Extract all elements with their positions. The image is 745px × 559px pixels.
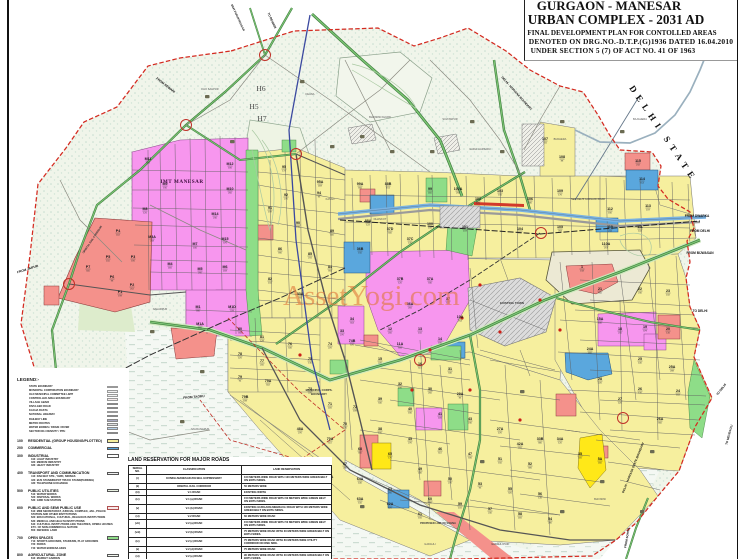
svg-text:104: 104 (517, 227, 523, 231)
svg-text:M7: M7 (193, 242, 198, 246)
svg-text:111: 111 (637, 225, 643, 229)
svg-text:75: 75 (308, 357, 312, 361)
svg-text:32: 32 (398, 382, 402, 386)
svg-text:38: 38 (378, 427, 382, 431)
svg-text:NEW DELHI GURGAON ROAD: NEW DELHI GURGAON ROAD (571, 198, 605, 201)
svg-text:63: 63 (388, 487, 392, 491)
svg-text:103: 103 (497, 189, 503, 193)
svg-text:53: 53 (478, 482, 482, 486)
svg-text:BAJGHERA: BAJGHERA (633, 117, 647, 121)
svg-text:50: 50 (448, 477, 452, 481)
svg-text:84: 84 (328, 265, 332, 269)
svg-text:72: 72 (353, 405, 357, 409)
svg-text:H5: H5 (249, 102, 258, 111)
svg-text:77: 77 (260, 359, 264, 363)
svg-text:58: 58 (518, 512, 522, 516)
svg-text:BUDHERA: BUDHERA (554, 137, 567, 141)
svg-text:P3: P3 (131, 255, 135, 259)
svg-text:BOUNDARY: BOUNDARY (311, 392, 327, 396)
svg-text:99A: 99A (357, 182, 364, 186)
svg-text:78: 78 (238, 352, 242, 356)
svg-text:76: 76 (288, 342, 292, 346)
svg-text:BHONDSI: BHONDSI (594, 497, 606, 501)
svg-text:46: 46 (438, 447, 442, 451)
svg-text:26A: 26A (657, 417, 664, 421)
svg-text:82: 82 (268, 277, 272, 281)
svg-text:16: 16 (418, 362, 422, 366)
svg-text:61: 61 (418, 512, 422, 516)
svg-text:40: 40 (408, 407, 412, 411)
svg-text:BHONDSI KHURD: BHONDSI KHURD (369, 115, 391, 119)
svg-text:M11: M11 (145, 157, 152, 161)
svg-text:M12: M12 (227, 162, 234, 166)
svg-text:89: 89 (330, 229, 334, 233)
svg-text:92: 92 (284, 193, 288, 197)
svg-text:M3A: M3A (148, 235, 156, 239)
svg-text:90: 90 (296, 221, 300, 225)
svg-text:64A: 64A (357, 477, 364, 481)
svg-text:86: 86 (278, 247, 282, 251)
svg-text:FROM DELHI: FROM DELHI (690, 229, 710, 233)
svg-text:EXISTING TOWN: EXISTING TOWN (500, 301, 524, 305)
svg-text:41: 41 (438, 412, 442, 416)
svg-text:20: 20 (666, 327, 670, 331)
svg-text:107: 107 (542, 137, 548, 141)
svg-text:FROM BIJWASAN: FROM BIJWASAN (686, 251, 714, 255)
svg-text:27: 27 (618, 397, 622, 401)
svg-text:NAHARPUR: NAHARPUR (153, 307, 168, 311)
svg-text:SULTANPUR: SULTANPUR (442, 117, 457, 121)
svg-text:45: 45 (408, 437, 412, 441)
svg-text:99: 99 (428, 187, 432, 191)
svg-text:30: 30 (428, 387, 432, 391)
svg-text:42A: 42A (517, 442, 524, 446)
svg-text:70A: 70A (327, 437, 334, 441)
svg-text:KASAN: KASAN (326, 197, 335, 201)
svg-text:74: 74 (328, 342, 332, 346)
svg-text:M8: M8 (143, 207, 148, 211)
svg-text:115: 115 (635, 159, 641, 163)
svg-text:54: 54 (548, 517, 552, 521)
svg-text:M6: M6 (223, 265, 228, 269)
svg-text:M14: M14 (212, 212, 219, 216)
svg-text:105: 105 (557, 225, 563, 229)
svg-text:102: 102 (475, 197, 481, 201)
svg-text:110A: 110A (602, 242, 611, 246)
svg-text:37C: 37C (407, 237, 414, 241)
svg-text:91: 91 (268, 206, 272, 210)
svg-text:113: 113 (645, 204, 651, 208)
svg-text:43: 43 (468, 417, 472, 421)
svg-text:34: 34 (350, 317, 354, 321)
svg-text:109: 109 (557, 189, 563, 193)
svg-text:18: 18 (618, 327, 622, 331)
svg-text:37D: 37D (387, 227, 394, 231)
svg-text:70: 70 (343, 422, 347, 426)
svg-text:TO DELHI: TO DELHI (715, 383, 727, 397)
svg-text:88B: 88B (385, 182, 392, 186)
svg-text:65: 65 (388, 452, 392, 456)
svg-text:27A: 27A (497, 427, 504, 431)
svg-text:22: 22 (638, 287, 642, 291)
svg-text:5A: 5A (598, 457, 603, 461)
svg-text:DHANA: DHANA (305, 92, 314, 96)
svg-text:FROM DWARKA: FROM DWARKA (685, 214, 710, 218)
svg-text:57: 57 (488, 507, 492, 511)
svg-text:36B: 36B (357, 247, 364, 251)
svg-text:13: 13 (418, 327, 422, 331)
svg-text:19: 19 (643, 325, 647, 329)
svg-text:94: 94 (317, 191, 321, 195)
svg-text:15A: 15A (597, 317, 604, 321)
svg-text:33B: 33B (537, 437, 544, 441)
svg-text:114: 114 (639, 177, 645, 181)
svg-text:P2: P2 (130, 283, 134, 287)
svg-text:14: 14 (438, 337, 442, 341)
svg-text:11A: 11A (397, 342, 404, 346)
svg-text:P4: P4 (116, 229, 120, 233)
svg-text:M15: M15 (222, 237, 229, 241)
svg-text:85: 85 (308, 252, 312, 256)
svg-text:M1D: M1D (228, 305, 236, 309)
svg-text:KHO SAHPUR: KHO SAHPUR (201, 87, 218, 91)
svg-text:59: 59 (458, 502, 462, 506)
svg-text:80: 80 (238, 327, 242, 331)
svg-text:79B: 79B (242, 395, 249, 399)
svg-text:H7: H7 (257, 114, 266, 123)
svg-text:IMT MANESAR: IMT MANESAR (160, 179, 203, 185)
svg-text:56: 56 (538, 492, 542, 496)
svg-text:M4: M4 (168, 262, 173, 266)
svg-text:PROPOSED LINK TO SOHNA: PROPOSED LINK TO SOHNA (420, 521, 456, 525)
svg-text:24A: 24A (587, 347, 594, 351)
svg-text:88A: 88A (365, 219, 372, 223)
svg-text:34A: 34A (557, 437, 564, 441)
svg-text:95: 95 (282, 165, 286, 169)
svg-text:67: 67 (343, 462, 347, 466)
svg-text:52: 52 (528, 462, 532, 466)
svg-text:10A: 10A (457, 315, 464, 319)
svg-text:28: 28 (598, 377, 602, 381)
svg-text:110: 110 (607, 225, 613, 229)
svg-text:39: 39 (378, 397, 382, 401)
svg-text:47: 47 (468, 452, 472, 456)
svg-text:GADAULI PUR: GADAULI PUR (491, 542, 509, 546)
svg-text:M1A: M1A (196, 322, 204, 326)
svg-text:MDH FARUKHNAGAR: MDH FARUKHNAGAR (230, 4, 246, 32)
svg-text:55: 55 (508, 487, 512, 491)
svg-text:100: 100 (427, 222, 433, 226)
svg-text:TO MEHRAULI: TO MEHRAULI (724, 424, 733, 445)
svg-text:108: 108 (559, 155, 565, 159)
svg-text:95A: 95A (317, 180, 324, 184)
svg-text:P1: P1 (118, 290, 122, 294)
svg-text:63A: 63A (357, 497, 364, 501)
svg-text:M5: M5 (198, 267, 203, 271)
svg-text:48A: 48A (297, 427, 304, 431)
svg-text:71: 71 (328, 402, 332, 406)
svg-text:51: 51 (498, 457, 502, 461)
svg-text:DHANKOT: DHANKOT (374, 217, 387, 221)
svg-text:35: 35 (578, 452, 582, 456)
svg-text:62A: 62A (387, 502, 394, 506)
svg-text:1: 1 (581, 265, 583, 269)
svg-text:M10: M10 (227, 187, 234, 191)
svg-text:112: 112 (607, 207, 613, 211)
svg-text:M1: M1 (196, 305, 201, 309)
svg-text:74B: 74B (349, 339, 356, 343)
svg-text:TO DELHI: TO DELHI (693, 309, 708, 313)
svg-text:60: 60 (428, 497, 432, 501)
svg-text:26: 26 (638, 387, 642, 391)
svg-text:23: 23 (666, 289, 670, 293)
svg-text:101: 101 (462, 225, 468, 229)
svg-text:24: 24 (676, 389, 680, 393)
svg-text:GARHI HARSARU: GARHI HARSARU (469, 147, 491, 151)
svg-text:TO REWARI: TO REWARI (267, 12, 278, 29)
svg-text:68: 68 (358, 447, 362, 451)
svg-text:25A: 25A (669, 365, 676, 369)
svg-text:21: 21 (598, 287, 602, 291)
svg-text:49: 49 (418, 467, 422, 471)
svg-text:81: 81 (260, 335, 264, 339)
svg-text:25: 25 (638, 357, 642, 361)
svg-text:H6: H6 (256, 84, 265, 93)
svg-text:106: 106 (527, 197, 533, 201)
svg-text:79A: 79A (265, 379, 272, 383)
svg-text:29A: 29A (457, 392, 464, 396)
svg-text:79: 79 (238, 375, 242, 379)
svg-text:33: 33 (340, 329, 344, 333)
svg-text:15: 15 (378, 357, 382, 361)
svg-text:P5: P5 (106, 255, 110, 259)
svg-text:GADAULI: GADAULI (424, 542, 436, 546)
svg-text:31: 31 (448, 367, 452, 371)
svg-text:NAURANGPUR: NAURANGPUR (191, 427, 210, 431)
svg-text:P6: P6 (110, 275, 114, 279)
svg-text:P7: P7 (86, 265, 90, 269)
svg-text:102A: 102A (454, 187, 463, 191)
svg-text:12: 12 (388, 327, 392, 331)
